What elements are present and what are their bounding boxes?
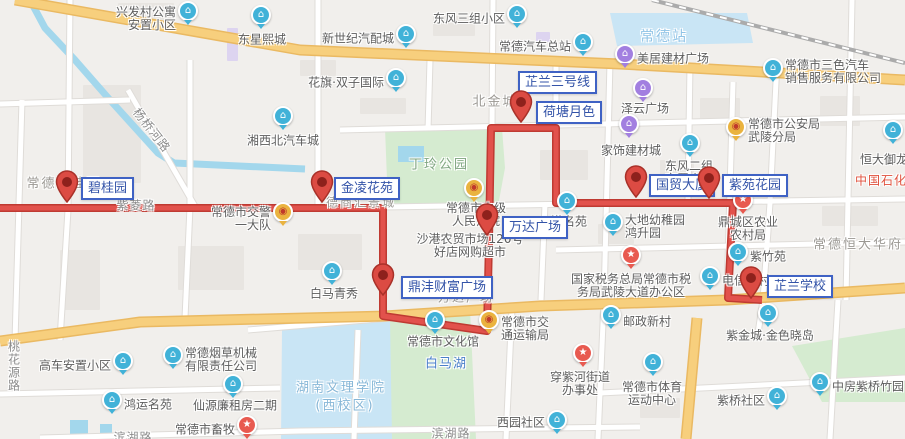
guomao-dasha-stop-marker-icon[interactable] bbox=[624, 165, 648, 202]
jinling-huayuan-stop-marker-icon[interactable] bbox=[310, 170, 334, 207]
map-pin-icon bbox=[697, 166, 721, 199]
map-pin-icon bbox=[371, 263, 395, 296]
hetang-yuese-stop-marker-icon[interactable] bbox=[509, 90, 533, 127]
ziyuan-huayuan-stop-label[interactable]: 紫苑花园 bbox=[722, 174, 788, 197]
map-pin-icon bbox=[55, 170, 79, 203]
dingfeng-caifu-guangchang-stop-label[interactable]: 鼎沣财富广场 bbox=[401, 276, 493, 299]
map-pin-icon bbox=[624, 165, 648, 198]
map-pin-icon bbox=[310, 170, 334, 203]
map-pin-icon bbox=[475, 203, 499, 236]
wanda-guangchang-stop-marker-icon[interactable] bbox=[475, 203, 499, 240]
bigui-yuan-stop-label[interactable]: 碧桂园 bbox=[81, 177, 134, 200]
hetang-yuese-stop-label[interactable]: 荷塘月色 bbox=[536, 101, 602, 124]
bigui-yuan-stop-marker-icon[interactable] bbox=[55, 170, 79, 207]
map-canvas[interactable]: 常德碧桂园德商汇景城北金城万达广场丁玲公园常德恒大华府常德站湖南文理学院(西校区… bbox=[0, 0, 905, 439]
dingfeng-caifu-guangchang-stop-marker-icon[interactable] bbox=[371, 263, 395, 300]
ziyuan-huayuan-stop-marker-icon[interactable] bbox=[697, 166, 721, 203]
route-stops-layer: 芷兰三号线碧桂园 金凌花苑 鼎沣财富广场 万达广场 荷塘月色 国贸大厦 紫苑花园… bbox=[0, 0, 905, 439]
map-pin-icon bbox=[739, 266, 763, 299]
jinling-huayuan-stop-label[interactable]: 金凌花苑 bbox=[334, 177, 400, 200]
zhilan-xuexiao-stop-marker-icon[interactable] bbox=[739, 266, 763, 303]
wanda-guangchang-stop-label[interactable]: 万达广场 bbox=[502, 216, 568, 239]
zhilan-xuexiao-stop-label[interactable]: 芷兰学校 bbox=[767, 275, 833, 298]
map-pin-icon bbox=[509, 90, 533, 123]
